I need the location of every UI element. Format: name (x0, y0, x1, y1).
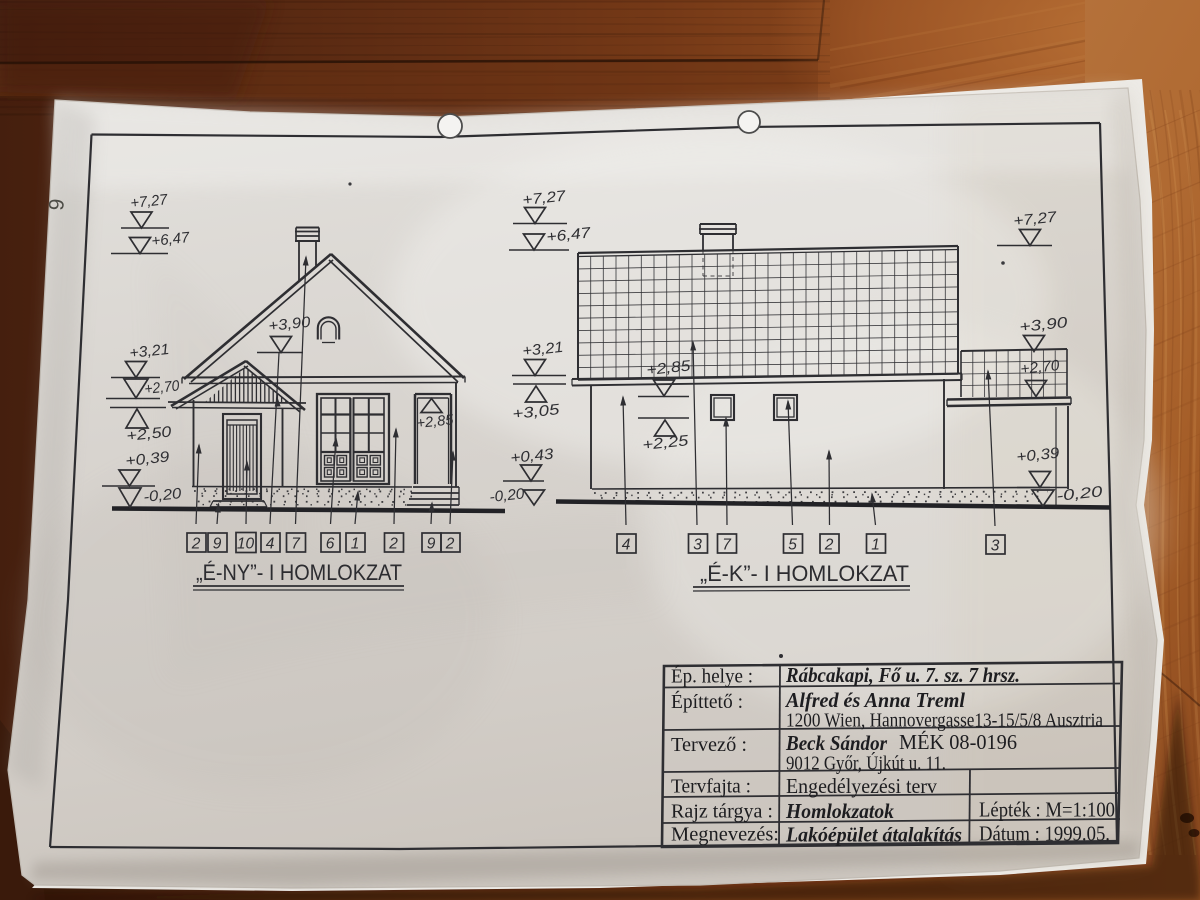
svg-text:2: 2 (445, 536, 455, 553)
svg-text:2: 2 (191, 536, 201, 553)
svg-text:9012 Győr, Újkút u. 11.: 9012 Győr, Újkút u. 11. (786, 753, 946, 775)
svg-text:Lakóépület átalakítás: Lakóépület átalakítás (785, 823, 962, 847)
svg-text:1: 1 (351, 536, 360, 553)
svg-text:Tervfajta :: Tervfajta : (671, 776, 751, 798)
svg-text:Rajz tárgya :: Rajz tárgya : (671, 801, 773, 823)
svg-text:Rábcakapi, Fő u. 7. sz. 7 hrsz: Rábcakapi, Fő u. 7. sz. 7 hrsz. (785, 663, 1020, 687)
svg-text:MÉK 08-0196: MÉK 08-0196 (899, 730, 1017, 754)
svg-text:1200 Wien, Hannovergasse13-15/: 1200 Wien, Hannovergasse13-15/5/8 Ausztr… (786, 711, 1103, 732)
svg-text:„É-K”- I HOMLOKZAT: „É-K”- I HOMLOKZAT (700, 561, 909, 586)
svg-text:Alfred és Anna Treml: Alfred és Anna Treml (784, 688, 965, 712)
svg-text:2: 2 (824, 537, 834, 554)
svg-text:Lépték : M=1:100: Lépték : M=1:100 (979, 798, 1115, 822)
svg-text:Tervező :: Tervező : (671, 734, 747, 756)
svg-text:1: 1 (871, 537, 880, 554)
svg-text:4: 4 (266, 536, 275, 553)
svg-text:Engedélyezési terv: Engedélyezési terv (786, 774, 937, 798)
svg-text:5: 5 (788, 537, 797, 554)
svg-text:4: 4 (622, 537, 631, 554)
svg-text:Építtető :: Építtető : (671, 690, 743, 713)
svg-text:Homlokzatok: Homlokzatok (785, 799, 894, 823)
svg-text:3: 3 (693, 537, 702, 554)
svg-text:„É-NY”- I HOMLOKZAT: „É-NY”- I HOMLOKZAT (196, 560, 402, 585)
svg-text:2: 2 (388, 536, 398, 553)
svg-text:9: 9 (45, 198, 69, 212)
svg-text:6: 6 (326, 536, 335, 553)
svg-text:Beck Sándor: Beck Sándor (785, 731, 888, 755)
svg-text:Megnevezés:: Megnevezés: (671, 824, 779, 846)
svg-text:Ép. helye :: Ép. helye : (671, 665, 753, 688)
svg-text:7: 7 (291, 536, 301, 553)
svg-text:7: 7 (722, 537, 732, 554)
svg-text:3: 3 (991, 538, 1000, 555)
svg-text:9: 9 (213, 536, 222, 553)
svg-text:Dátum : 1999.05.: Dátum : 1999.05. (979, 822, 1110, 846)
svg-text:9: 9 (427, 536, 436, 553)
svg-text:10: 10 (237, 536, 255, 553)
